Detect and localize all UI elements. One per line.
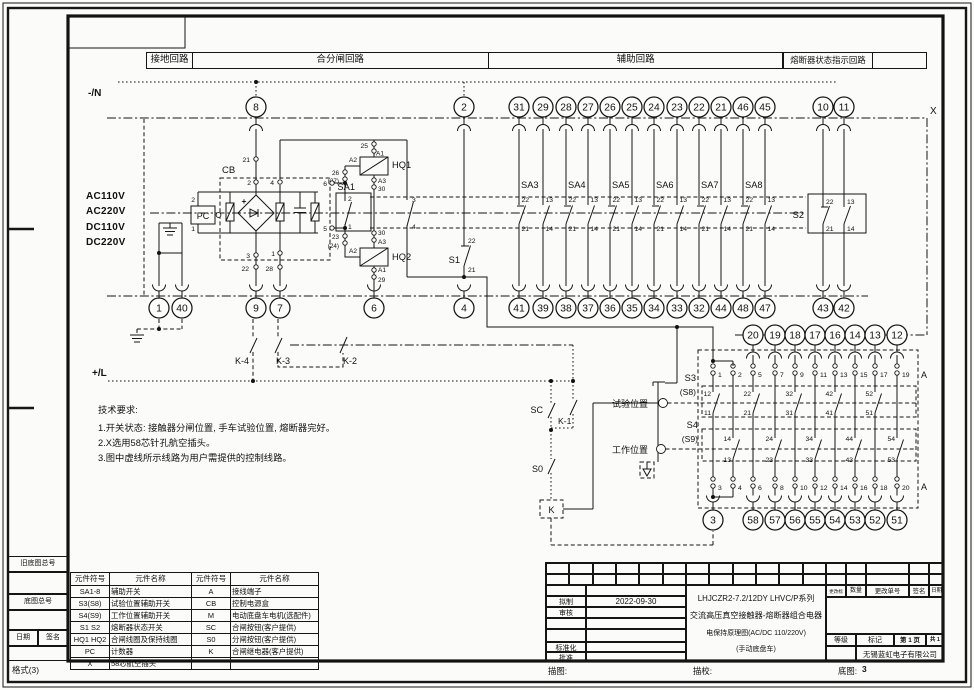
pin-circle bbox=[895, 371, 899, 375]
tb-rev-cell bbox=[709, 563, 732, 574]
tb-qty: 数量 bbox=[846, 585, 866, 597]
margin-base-no: 底图总号 bbox=[8, 594, 68, 610]
pin-circle bbox=[372, 185, 376, 189]
pin-circle bbox=[254, 180, 258, 184]
tb-rev-cell bbox=[639, 574, 662, 585]
tb-rev-cell bbox=[686, 563, 709, 574]
tb-empty bbox=[586, 585, 686, 596]
tb-approved-label: 批准 bbox=[546, 652, 586, 662]
tb-empty bbox=[586, 642, 686, 652]
ptable-cell: M bbox=[192, 610, 231, 622]
ptable-cell: 控制电源盒 bbox=[231, 598, 319, 610]
voltage-item: DC110V bbox=[86, 220, 126, 235]
ptable-cell: K bbox=[192, 646, 231, 658]
svg-text:6: 6 bbox=[371, 304, 377, 315]
svg-text:14: 14 bbox=[680, 226, 688, 233]
format-label: 格式(3) bbox=[12, 664, 39, 676]
pin-circle bbox=[372, 275, 376, 279]
svg-text:25: 25 bbox=[626, 103, 638, 114]
junction-dot bbox=[254, 80, 258, 84]
svg-text:5: 5 bbox=[758, 372, 762, 379]
margin-date: 日期 bbox=[8, 630, 38, 646]
table-row: S1 S2熔断器状态开关SC合闸按钮(客户提供) bbox=[71, 622, 319, 634]
svg-text:21: 21 bbox=[657, 226, 665, 233]
base-drawing-value: 3 bbox=[862, 664, 867, 674]
svg-text:13: 13 bbox=[869, 331, 881, 342]
svg-text:12: 12 bbox=[703, 391, 711, 398]
voltage-item: DC220V bbox=[86, 235, 126, 250]
svg-text:45: 45 bbox=[759, 103, 771, 114]
ptable-cell: 分闸按钮(客户提供) bbox=[231, 634, 319, 646]
svg-text:A3: A3 bbox=[378, 239, 386, 246]
pin-circle bbox=[813, 371, 817, 375]
pin-circle bbox=[793, 364, 797, 368]
table-row: S3(S8)试验位置辅助开关CB控制电源盒 bbox=[71, 598, 319, 610]
circuit-section-header: 接地回路 合分闸回路 辅助回路 熔断器状态指示回路 bbox=[146, 52, 927, 69]
pin-circle bbox=[372, 178, 376, 182]
svg-text:3: 3 bbox=[246, 253, 250, 260]
ptable-header: 元件名称 bbox=[231, 573, 319, 586]
pin-circle bbox=[751, 477, 755, 481]
header-cell-aux: 辅助回路 bbox=[488, 52, 784, 69]
pin-circle bbox=[711, 484, 715, 488]
header-cell-fuse: 熔断器状态指示回路 bbox=[782, 52, 873, 69]
tb-rev-cell bbox=[803, 574, 826, 585]
component-table: 元件符号元件名称元件符号元件名称SA1-8辅助开关A接线端子S3(S8)试验位置… bbox=[70, 572, 319, 670]
pin-circle bbox=[813, 477, 817, 481]
svg-text:8: 8 bbox=[780, 485, 784, 492]
tb-rev-cell bbox=[846, 563, 866, 574]
tb-page: 第 1 页 bbox=[894, 634, 926, 646]
tb-rev-cell bbox=[733, 574, 756, 585]
svg-text:22: 22 bbox=[241, 266, 249, 273]
svg-text:13: 13 bbox=[723, 457, 731, 464]
svg-text:HQ1: HQ1 bbox=[392, 160, 411, 170]
svg-text:11: 11 bbox=[704, 410, 711, 417]
tb-rev-cell bbox=[929, 563, 944, 574]
svg-text:29: 29 bbox=[378, 277, 386, 284]
svg-text:21: 21 bbox=[702, 226, 710, 233]
svg-text:SA6: SA6 bbox=[656, 180, 674, 190]
tb-rev-cell bbox=[616, 574, 639, 585]
junction-dot bbox=[157, 251, 161, 255]
svg-text:53: 53 bbox=[849, 516, 861, 527]
svg-text:1: 1 bbox=[156, 304, 162, 315]
svg-text:X: X bbox=[930, 106, 937, 117]
svg-text:8: 8 bbox=[253, 103, 259, 114]
ptable-cell: 合闸线圈及保持线圈 bbox=[110, 634, 192, 646]
svg-text:13: 13 bbox=[591, 197, 599, 204]
pin-circle bbox=[895, 484, 899, 488]
trace-check-label: 描校: bbox=[693, 665, 712, 677]
svg-text:25: 25 bbox=[360, 143, 368, 150]
svg-text:14: 14 bbox=[635, 226, 643, 233]
tb-drawing-title: LHJCZR2-7.2/12DY LHVC/P系列 交流高压真空接触器-熔断器组… bbox=[686, 585, 826, 662]
tb-rev-cell bbox=[569, 574, 592, 585]
svg-text:3: 3 bbox=[710, 516, 716, 527]
tb-rev-cell bbox=[909, 574, 929, 585]
svg-text:21: 21 bbox=[743, 410, 751, 417]
technical-notes: 技术要求: 1.开关状态: 接触器分闸位置, 手车试验位置, 熔断器完好。 2.… bbox=[98, 402, 438, 466]
ptable-cell: S4(S9) bbox=[71, 610, 110, 622]
tb-title-line: (手动底盘车) bbox=[687, 644, 825, 654]
svg-text:3: 3 bbox=[412, 197, 416, 204]
svg-text:试验位置: 试验位置 bbox=[612, 398, 648, 409]
ptable-cell: CB bbox=[192, 598, 231, 610]
tb-rev-cell bbox=[779, 563, 802, 574]
pin-circle bbox=[793, 484, 797, 488]
svg-text:23: 23 bbox=[765, 457, 773, 464]
table-row: S4(S9)工作位置辅助开关M电动底盘车电机(选配件) bbox=[71, 610, 319, 622]
pin-circle bbox=[751, 371, 755, 375]
svg-text:26: 26 bbox=[604, 103, 616, 114]
svg-text:24: 24 bbox=[648, 103, 660, 114]
tb-title-line: LHJCZR2-7.2/12DY LHVC/P系列 bbox=[687, 593, 825, 604]
svg-text:SA7: SA7 bbox=[701, 180, 719, 190]
tb-empty bbox=[546, 618, 586, 629]
svg-text:22: 22 bbox=[693, 103, 705, 114]
tb-rev-cell bbox=[593, 563, 616, 574]
pin-circle bbox=[254, 265, 258, 269]
pin-circle bbox=[254, 253, 258, 257]
tb-empty bbox=[546, 629, 586, 642]
tb-empty bbox=[586, 652, 686, 662]
plug-icon bbox=[769, 496, 782, 503]
svg-text:21: 21 bbox=[613, 226, 621, 233]
svg-text:42: 42 bbox=[838, 304, 850, 315]
ptable-header: 元件名称 bbox=[110, 573, 192, 586]
ptable-cell: 计数器 bbox=[110, 646, 192, 658]
pin-circle bbox=[895, 477, 899, 481]
svg-text:21: 21 bbox=[242, 157, 250, 164]
svg-text:19: 19 bbox=[902, 372, 910, 379]
tb-rev-cell bbox=[909, 563, 929, 574]
svg-text:14: 14 bbox=[849, 331, 861, 342]
svg-text:SA5: SA5 bbox=[612, 180, 630, 190]
pin-circle bbox=[833, 477, 837, 481]
tb-rev-cell bbox=[686, 574, 709, 585]
svg-text:21: 21 bbox=[522, 226, 530, 233]
pin-circle bbox=[330, 226, 334, 230]
svg-text:22: 22 bbox=[569, 197, 577, 204]
svg-text:48: 48 bbox=[737, 304, 749, 315]
plug-icon bbox=[809, 496, 822, 503]
note-line: 2.X选用58芯针孔航空插头。 bbox=[98, 436, 438, 451]
svg-text:14: 14 bbox=[546, 226, 554, 233]
svg-text:32: 32 bbox=[693, 304, 705, 315]
svg-text:11: 11 bbox=[839, 103, 850, 114]
voltage-item: AC110V bbox=[86, 189, 126, 204]
svg-text:13: 13 bbox=[840, 372, 848, 379]
svg-text:6: 6 bbox=[323, 181, 327, 188]
svg-text:A1: A1 bbox=[378, 267, 386, 274]
title-block: 拟制 审核 标准化 批准 2022-09-30 LHJCZR2-7.2/12DY… bbox=[545, 562, 943, 661]
svg-text:44: 44 bbox=[715, 304, 727, 315]
svg-text:-/N: -/N bbox=[88, 88, 101, 99]
svg-text:4: 4 bbox=[412, 224, 416, 231]
pin-circle bbox=[873, 484, 877, 488]
tb-rev-mark: 更改标记 bbox=[826, 585, 846, 597]
svg-text:20: 20 bbox=[747, 331, 759, 342]
svg-text:4: 4 bbox=[738, 485, 742, 492]
pin-circle bbox=[751, 364, 755, 368]
svg-text:10: 10 bbox=[800, 485, 808, 492]
note-line: 3.图中虚线所示线路为用户需提供的控制线路。 bbox=[98, 451, 438, 466]
svg-text:K-4: K-4 bbox=[235, 356, 249, 366]
ptable-cell: SC bbox=[192, 622, 231, 634]
pin-circle bbox=[793, 371, 797, 375]
plug-icon bbox=[869, 496, 882, 503]
tb-empty bbox=[826, 597, 944, 634]
svg-text:31: 31 bbox=[785, 410, 793, 417]
pin-circle bbox=[895, 364, 899, 368]
tb-rev-cell bbox=[779, 574, 802, 585]
tb-rev-cell bbox=[846, 574, 866, 585]
svg-text:S2: S2 bbox=[793, 210, 804, 220]
svg-text:43: 43 bbox=[845, 457, 853, 464]
junction-dot bbox=[343, 181, 347, 185]
table-row: X58芯航空插头 bbox=[71, 658, 319, 670]
tb-standardized-label: 标准化 bbox=[546, 642, 586, 652]
tb-title-line: 电保持原理图(AC/DC 110/220V) bbox=[687, 628, 825, 638]
svg-text:30: 30 bbox=[378, 186, 386, 193]
svg-text:34: 34 bbox=[805, 436, 813, 443]
svg-text:15: 15 bbox=[860, 372, 868, 379]
svg-text:工作位置: 工作位置 bbox=[612, 444, 648, 455]
pin-circle bbox=[372, 268, 376, 272]
pin-circle bbox=[711, 364, 715, 368]
plug-icon bbox=[747, 496, 760, 503]
svg-text:(S8): (S8) bbox=[680, 387, 696, 397]
svg-text:CB: CB bbox=[222, 165, 235, 176]
pin-circle bbox=[343, 234, 347, 238]
tb-rev-cell bbox=[929, 574, 944, 585]
plug-icon bbox=[458, 285, 471, 292]
svg-text:20: 20 bbox=[902, 485, 910, 492]
ptable-cell: 电动底盘车电机(选配件) bbox=[231, 610, 319, 622]
svg-text:13: 13 bbox=[546, 197, 554, 204]
svg-text:9: 9 bbox=[253, 304, 259, 315]
tb-rev-cell bbox=[663, 574, 686, 585]
svg-text:54: 54 bbox=[829, 516, 841, 527]
svg-text:37: 37 bbox=[582, 304, 594, 315]
svg-text:K-2: K-2 bbox=[343, 356, 357, 366]
pin-circle bbox=[731, 371, 735, 375]
pin-circle bbox=[813, 484, 817, 488]
pin-circle bbox=[833, 371, 837, 375]
svg-text:4: 4 bbox=[461, 304, 467, 315]
svg-text:SA8: SA8 bbox=[745, 180, 763, 190]
ptable-cell: 58芯航空插头 bbox=[110, 658, 192, 670]
voltage-options: AC110V AC220V DC110V DC220V bbox=[86, 189, 126, 250]
svg-text:5: 5 bbox=[323, 226, 327, 233]
svg-text:24: 24 bbox=[765, 436, 773, 443]
pin-circle bbox=[330, 181, 334, 185]
pin-circle bbox=[343, 177, 347, 181]
tb-rev-cell bbox=[756, 574, 779, 585]
junction-dot bbox=[157, 327, 161, 331]
svg-text:18: 18 bbox=[880, 485, 888, 492]
ptable-cell: 试验位置辅助开关 bbox=[110, 598, 192, 610]
svg-text:(S9): (S9) bbox=[682, 434, 698, 444]
junction-dot bbox=[343, 226, 347, 230]
svg-text:14: 14 bbox=[591, 226, 599, 233]
svg-text:42: 42 bbox=[825, 391, 833, 398]
svg-text:S3: S3 bbox=[685, 373, 696, 383]
svg-text:21: 21 bbox=[746, 226, 754, 233]
pin-circle bbox=[873, 364, 877, 368]
svg-text:22: 22 bbox=[826, 199, 834, 206]
svg-text:53: 53 bbox=[887, 457, 895, 464]
ptable-header: 元件符号 bbox=[71, 573, 110, 586]
svg-text:17: 17 bbox=[880, 372, 888, 379]
table-row: HQ1 HQ2合闸线圈及保持线圈S0分闸按钮(客户提供) bbox=[71, 634, 319, 646]
plug-icon bbox=[829, 496, 842, 503]
pin-circle bbox=[773, 371, 777, 375]
svg-text:57: 57 bbox=[769, 516, 781, 527]
tb-rev-cell bbox=[756, 563, 779, 574]
svg-text:26: 26 bbox=[332, 170, 340, 177]
svg-text:12: 12 bbox=[820, 485, 828, 492]
pin-circle bbox=[853, 477, 857, 481]
margin-old-base-no: 旧底图总号 bbox=[8, 556, 68, 572]
tb-rev-no: 更改单号 bbox=[866, 585, 909, 597]
svg-text:23: 23 bbox=[671, 103, 683, 114]
svg-text:6: 6 bbox=[758, 485, 762, 492]
svg-text:21: 21 bbox=[468, 267, 476, 274]
tb-rev-cell bbox=[866, 563, 909, 574]
svg-text:4: 4 bbox=[270, 180, 274, 187]
tb-rev-cell bbox=[803, 563, 826, 574]
notes-title: 技术要求: bbox=[98, 402, 438, 416]
svg-text:55: 55 bbox=[809, 516, 821, 527]
ptable-cell: 接线端子 bbox=[231, 586, 319, 598]
svg-text:11: 11 bbox=[820, 372, 827, 379]
svg-text:22: 22 bbox=[743, 391, 751, 398]
tb-empty bbox=[586, 618, 686, 629]
svg-text:16: 16 bbox=[829, 331, 841, 342]
svg-text:31: 31 bbox=[513, 103, 525, 114]
ptable-cell bbox=[231, 658, 319, 670]
pin-circle bbox=[278, 251, 282, 255]
svg-text:43: 43 bbox=[817, 304, 829, 315]
pin-circle bbox=[833, 484, 837, 488]
pin-circle bbox=[773, 484, 777, 488]
svg-text:35: 35 bbox=[626, 304, 638, 315]
svg-text:28: 28 bbox=[265, 266, 273, 273]
svg-text:2: 2 bbox=[348, 196, 352, 203]
ptable-cell: S0 bbox=[192, 634, 231, 646]
svg-text:13: 13 bbox=[768, 197, 776, 204]
svg-text:SA3: SA3 bbox=[521, 180, 539, 190]
table-row: PC计数器K合闸继电器(客户提供) bbox=[71, 646, 319, 658]
ptable-cell: S1 S2 bbox=[71, 622, 110, 634]
tb-rev-cell bbox=[546, 563, 569, 574]
svg-text:(24): (24) bbox=[328, 243, 339, 250]
svg-text:14: 14 bbox=[840, 485, 848, 492]
junction-dot bbox=[549, 379, 553, 383]
tb-rev-cell bbox=[826, 574, 846, 585]
svg-text:21: 21 bbox=[715, 103, 727, 114]
svg-text:22: 22 bbox=[657, 197, 665, 204]
svg-text:30: 30 bbox=[378, 230, 386, 237]
svg-text:2: 2 bbox=[461, 103, 467, 114]
ptable-cell: HQ1 HQ2 bbox=[71, 634, 110, 646]
pin-circle bbox=[873, 371, 877, 375]
svg-text:2: 2 bbox=[247, 180, 251, 187]
tb-rev-cell bbox=[569, 563, 592, 574]
svg-text:21: 21 bbox=[569, 226, 577, 233]
svg-text:22: 22 bbox=[613, 197, 621, 204]
svg-text:7: 7 bbox=[277, 304, 283, 315]
table-row: SA1-8辅助开关A接线端子 bbox=[71, 586, 319, 598]
tb-rev-cell bbox=[733, 563, 756, 574]
ptable-cell: A bbox=[192, 586, 231, 598]
pin-circle bbox=[793, 477, 797, 481]
svg-text:2: 2 bbox=[738, 372, 742, 379]
svg-text:13: 13 bbox=[635, 197, 643, 204]
tb-rev-cell bbox=[663, 563, 686, 574]
header-cell-empty bbox=[872, 52, 927, 69]
svg-text:+: + bbox=[242, 196, 247, 206]
svg-text:32: 32 bbox=[785, 391, 793, 398]
svg-text:58: 58 bbox=[747, 516, 759, 527]
voltage-item: AC220V bbox=[86, 204, 126, 219]
svg-text:16: 16 bbox=[860, 485, 868, 492]
svg-text:44: 44 bbox=[845, 436, 853, 443]
junction-dot bbox=[711, 359, 715, 363]
svg-text:52: 52 bbox=[869, 516, 881, 527]
tb-rev-cell bbox=[826, 563, 846, 574]
tb-sign: 签名 bbox=[909, 585, 929, 597]
header-cell-closing: 合分闸回路 bbox=[192, 52, 489, 69]
plug-icon bbox=[849, 496, 862, 503]
svg-text:14: 14 bbox=[847, 226, 855, 233]
tb-date-value: 2022-09-30 bbox=[586, 596, 686, 607]
pin-circle bbox=[833, 364, 837, 368]
pin-circle bbox=[372, 142, 376, 146]
header-cell-ground: 接地回路 bbox=[146, 52, 193, 69]
svg-text:2: 2 bbox=[191, 197, 195, 204]
svg-text:13: 13 bbox=[724, 197, 732, 204]
plug-icon bbox=[789, 496, 802, 503]
svg-text:14: 14 bbox=[723, 436, 731, 443]
svg-text:51: 51 bbox=[865, 410, 873, 417]
svg-text:10: 10 bbox=[817, 103, 829, 114]
pin-circle bbox=[873, 477, 877, 481]
drawing-sheet: .w{stroke:#161616;stroke-width:1;fill:no… bbox=[0, 0, 974, 690]
ptable-cell: PC bbox=[71, 646, 110, 658]
margin-sign: 签名 bbox=[38, 630, 68, 646]
tb-rev-cell bbox=[866, 574, 909, 585]
svg-text:A: A bbox=[921, 370, 927, 380]
pin-circle bbox=[254, 157, 258, 161]
pin-circle bbox=[278, 265, 282, 269]
tb-checked-label: 审核 bbox=[546, 607, 586, 618]
junction-dot bbox=[251, 379, 255, 383]
pin-circle bbox=[731, 484, 735, 488]
svg-text:22: 22 bbox=[522, 197, 530, 204]
svg-text:41: 41 bbox=[513, 304, 525, 315]
pin-circle bbox=[813, 364, 817, 368]
svg-text:46: 46 bbox=[737, 103, 749, 114]
tb-rev-cell bbox=[709, 574, 732, 585]
svg-text:14: 14 bbox=[768, 226, 776, 233]
ptable-cell: 工作位置辅助开关 bbox=[110, 610, 192, 622]
svg-text:1: 1 bbox=[271, 251, 275, 258]
tb-empty bbox=[546, 585, 586, 596]
pin-circle bbox=[773, 477, 777, 481]
